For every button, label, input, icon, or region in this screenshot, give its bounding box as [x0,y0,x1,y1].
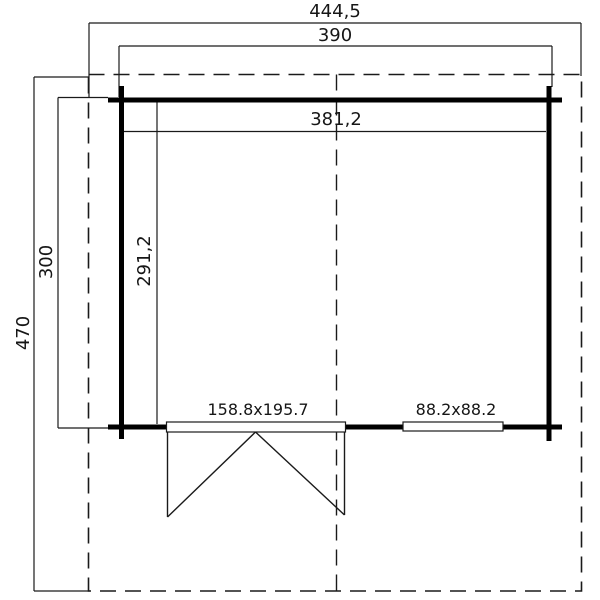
door-swing-right [256,432,345,515]
door-frame [167,422,346,432]
dim-label-frame-width: 390 [318,27,352,45]
window [403,422,503,431]
dim-label-door-size: 158.8x195.7 [207,402,308,418]
walls [108,86,562,441]
floor-plan-drawing [0,0,600,600]
dim-label-frame-depth: 300 [38,245,56,279]
dim-label-overall-width: 444,5 [309,3,361,21]
floor-plan-canvas: 444,5 390 381,2 291,2 300 470 158.8x195.… [0,0,600,600]
door [167,422,346,517]
dim-label-window-size: 88.2x88.2 [416,402,497,418]
dimension-lines [34,23,581,591]
dim-label-overall-depth: 470 [15,316,33,350]
roof-outline [89,75,582,592]
dim-label-interior-depth: 291,2 [136,235,154,287]
door-swing-left [168,432,256,517]
dim-label-interior-width: 381,2 [310,111,362,129]
window-frame [403,422,503,431]
